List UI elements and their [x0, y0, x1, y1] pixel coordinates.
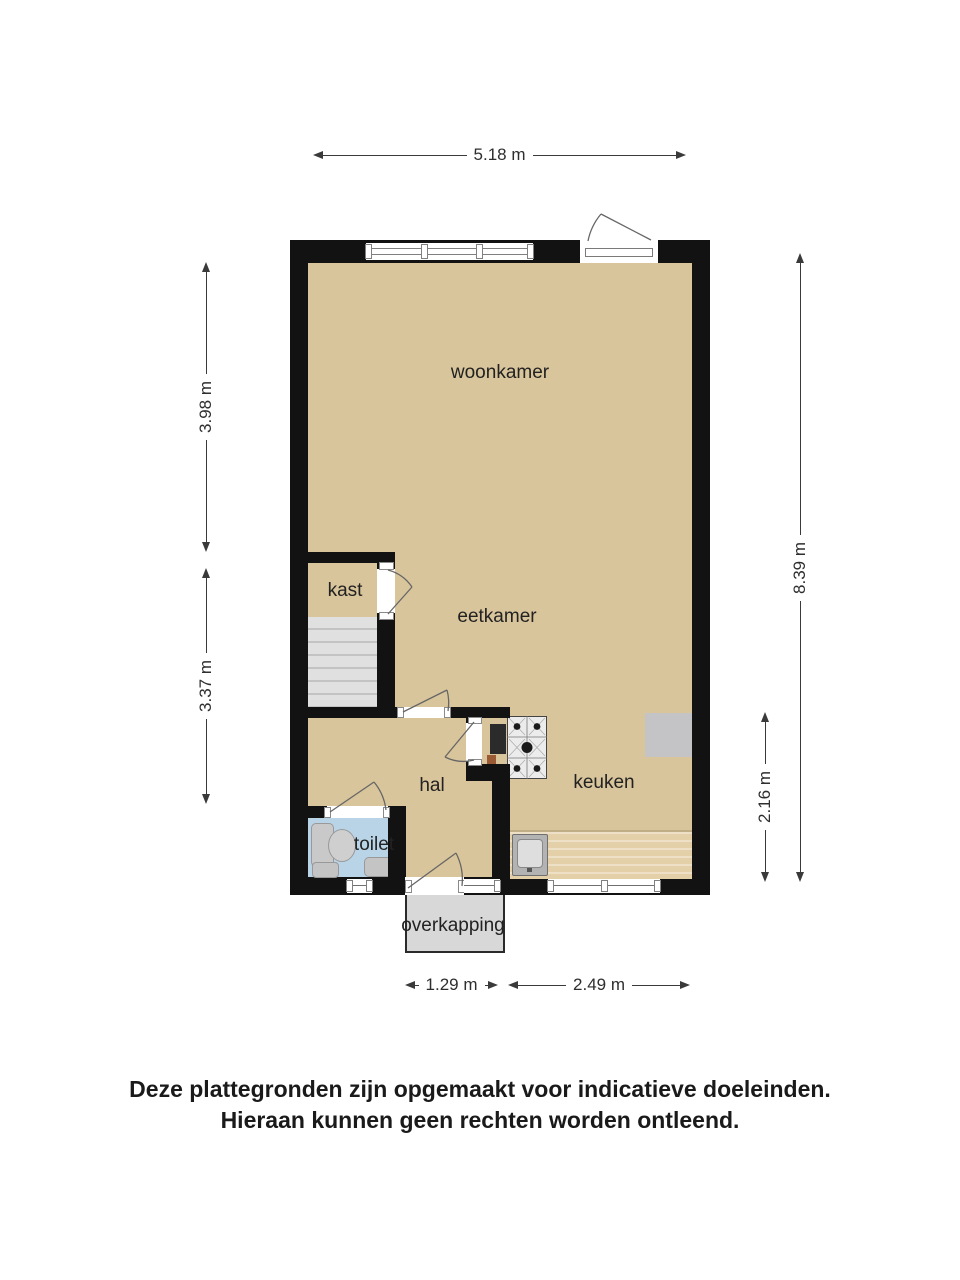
room-label-overkapping: overkapping [401, 915, 505, 937]
room-label-keuken: keuken [573, 772, 634, 794]
stairs [308, 617, 377, 707]
dimension-left-lower: 3.37 m [197, 568, 215, 804]
kitchen-sink [512, 834, 548, 876]
dark-appliance [490, 724, 506, 754]
disclaimer-line1: Deze plattegronden zijn opgemaakt voor i… [0, 1074, 960, 1105]
door-kast [377, 569, 395, 613]
window-toilet [347, 879, 372, 893]
room-label-hal: hal [419, 775, 444, 797]
door-front [405, 877, 464, 895]
window-woonkamer [366, 243, 533, 260]
dimension-left-upper: 3.98 m [197, 262, 215, 552]
dimension-top-width: 5.18 m [313, 146, 686, 164]
toilet-cabinet [312, 862, 339, 878]
kitchen-sink-basin [517, 839, 543, 868]
kitchen-appliance-block [645, 713, 692, 757]
window-front-sidelight [464, 879, 500, 893]
room-label-woonkamer: woonkamer [451, 362, 549, 384]
door-keuken [466, 723, 482, 761]
disclaimer-text: Deze plattegronden zijn opgemaakt voor i… [0, 1074, 960, 1136]
floor-plan: woonkamer eetkamer kast hal toilet keuke… [0, 0, 960, 1280]
dimension-right-lower: 2.16 m [756, 712, 774, 882]
toilet-bowl [328, 829, 356, 862]
dimension-bottom-door: 1.29 m [405, 976, 498, 994]
room-label-eetkamer: eetkamer [457, 606, 536, 628]
room-label-toilet: toilet [354, 834, 394, 856]
door-back-leaf [585, 248, 653, 257]
window-keuken [548, 879, 660, 893]
dimension-right-full: 8.39 m [791, 253, 809, 882]
wall-keuken-corner [466, 764, 510, 781]
door-back-opening [580, 240, 658, 263]
room-label-kast: kast [328, 580, 363, 602]
kitchen-sink-tap [527, 868, 532, 872]
door-eetkamer [400, 707, 448, 718]
door-toilet [327, 806, 388, 818]
dimension-bottom-kitchen: 2.49 m [508, 976, 690, 994]
disclaimer-line2: Hieraan kunnen geen rechten worden ontle… [0, 1105, 960, 1136]
wall-hal-keuken [492, 781, 510, 877]
